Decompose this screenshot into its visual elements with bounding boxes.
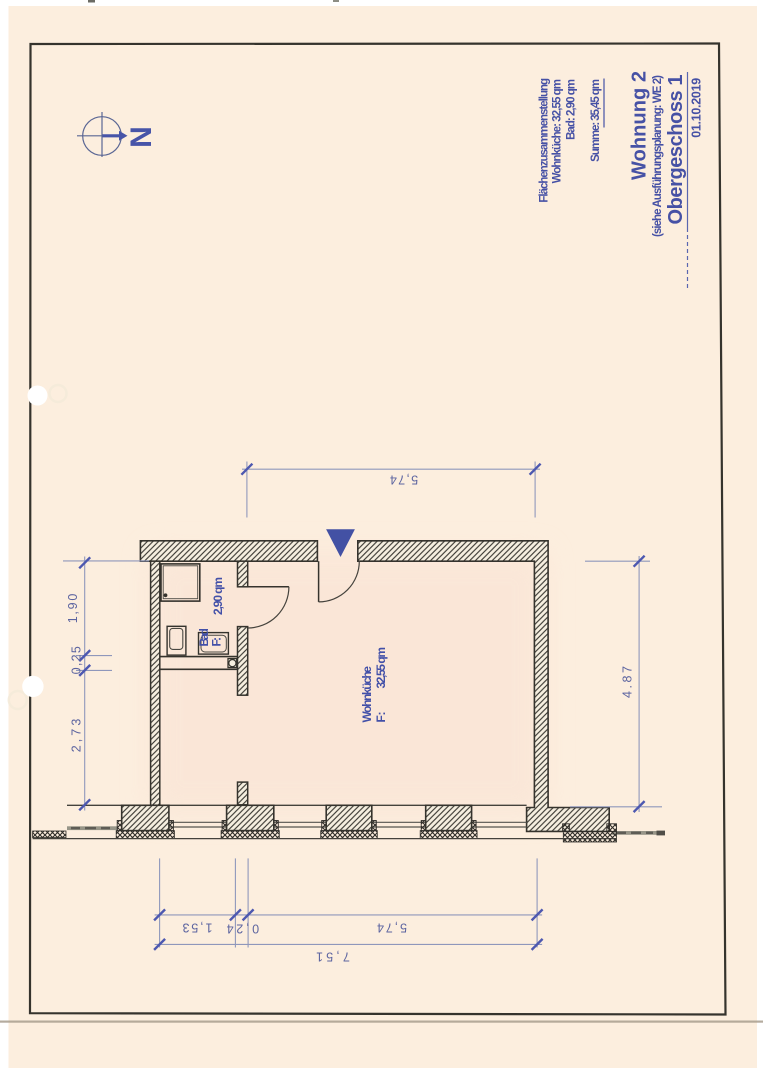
svg-text:Wohnung 2: Wohnung 2 [629, 71, 651, 180]
svg-text:1,90: 1,90 [66, 594, 80, 624]
svg-text:4.87: 4.87 [621, 666, 635, 698]
svg-text:1,53: 1,53 [182, 921, 212, 935]
svg-text:F:: F: [210, 637, 224, 647]
svg-text:2,73: 2,73 [70, 719, 84, 753]
svg-text:Wohnküche: 32,55 qm: Wohnküche: 32,55 qm [552, 79, 564, 183]
svg-text:Summe: 35,45 qm: Summe: 35,45 qm [590, 79, 602, 162]
svg-text:32,55 qm: 32,55 qm [374, 647, 388, 689]
svg-text:Flächenzusammenstellung: Flächenzusammenstellung [539, 78, 551, 203]
svg-text:F:: F: [374, 712, 388, 723]
svg-text:5,74: 5,74 [390, 473, 418, 487]
svg-text:7,51: 7,51 [316, 950, 350, 964]
svg-text:N: N [125, 126, 158, 148]
svg-text:Wohnküche: Wohnküche [360, 666, 374, 723]
svg-text:0,24: 0,24 [227, 922, 260, 936]
svg-text:5,74: 5,74 [377, 921, 407, 935]
svg-text:Bad: 2,90 qm: Bad: 2,90 qm [566, 79, 578, 140]
svg-text:0,25: 0,25 [69, 646, 83, 674]
svg-text:01.10.2019: 01.10.2019 [690, 78, 704, 138]
svg-text:(siehe Ausführungsplanung: WE: (siehe Ausführungsplanung: WE 2) [652, 75, 664, 237]
svg-text:2,90 qm: 2,90 qm [211, 577, 225, 615]
svg-text:Obergeschoss 1: Obergeschoss 1 [665, 75, 687, 225]
